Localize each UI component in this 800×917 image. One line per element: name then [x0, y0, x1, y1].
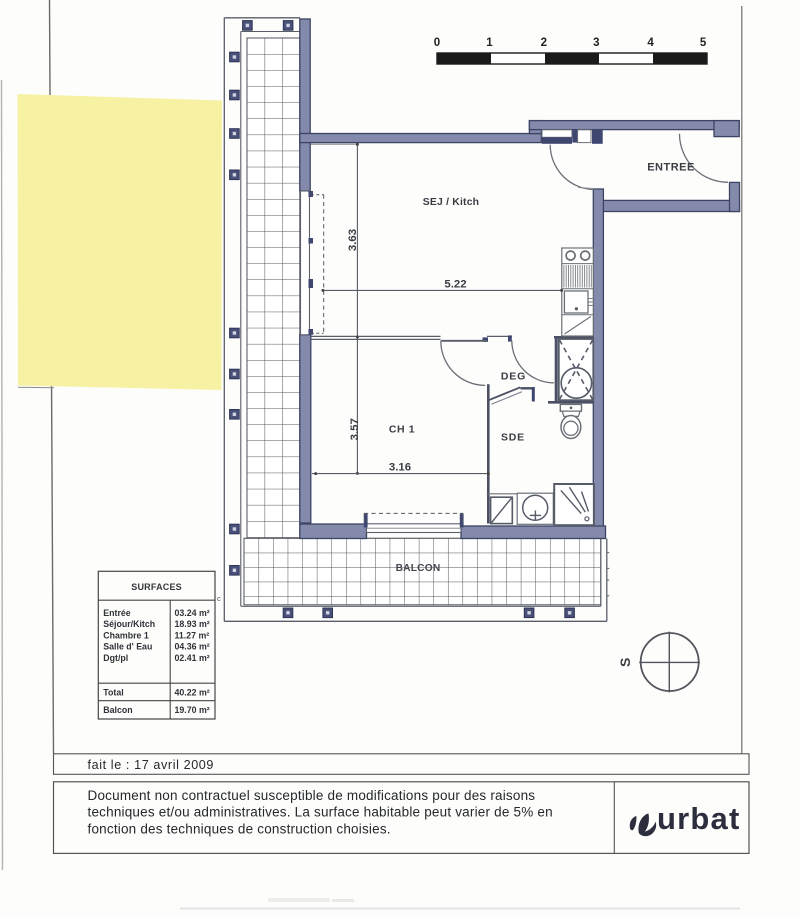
svg-text:SDE: SDE — [501, 432, 525, 444]
svg-text:ENTREE: ENTREE — [647, 161, 695, 173]
svg-text:1: 1 — [486, 37, 493, 49]
svg-text:19.70 m²: 19.70 m² — [175, 705, 210, 715]
svg-text:5: 5 — [700, 37, 707, 49]
svg-text:11.27 m²: 11.27 m² — [175, 630, 210, 640]
svg-text:Chambre 1: Chambre 1 — [103, 630, 149, 640]
svg-text:c: c — [217, 594, 221, 603]
svg-text:fait le : 17 avril 2009: fait le : 17 avril 2009 — [88, 758, 215, 772]
svg-text:Dgt/pl: Dgt/pl — [103, 653, 128, 663]
svg-text:Total: Total — [103, 687, 123, 697]
svg-text:02.41 m²: 02.41 m² — [175, 653, 210, 663]
svg-text:Entrée: Entrée — [103, 608, 130, 618]
svg-text:4: 4 — [647, 37, 654, 49]
svg-text:3.63: 3.63 — [347, 229, 359, 251]
svg-text:2: 2 — [541, 37, 547, 49]
svg-text:18.93 m²: 18.93 m² — [175, 619, 210, 629]
svg-text:Document non contractuel susce: Document non contractuel susceptible de … — [88, 788, 536, 803]
svg-text:BALCON: BALCON — [396, 563, 441, 574]
svg-text:fonction des techniques de con: fonction des techniques de construction … — [88, 821, 391, 836]
svg-text:DEG: DEG — [501, 371, 526, 383]
svg-text:0: 0 — [434, 37, 440, 49]
svg-text:urbat: urbat — [657, 801, 741, 836]
svg-text:40.22 m²: 40.22 m² — [175, 687, 210, 697]
svg-text:3.16: 3.16 — [389, 461, 411, 473]
svg-text:5.22: 5.22 — [444, 279, 466, 291]
svg-text:3.57: 3.57 — [349, 418, 361, 440]
svg-text:Balcon: Balcon — [103, 705, 132, 715]
svg-text:3: 3 — [593, 37, 599, 49]
svg-text:SURFACES: SURFACES — [131, 582, 182, 592]
svg-text:Salle d' Eau: Salle d' Eau — [103, 642, 152, 652]
svg-text:S: S — [617, 658, 633, 667]
svg-text:04.36 m²: 04.36 m² — [175, 642, 210, 652]
svg-text:Séjour/Kitch: Séjour/Kitch — [103, 619, 155, 629]
svg-text:CH 1: CH 1 — [389, 424, 415, 436]
svg-text:03.24 m²: 03.24 m² — [175, 608, 210, 618]
svg-text:SEJ / Kitch: SEJ / Kitch — [423, 197, 479, 208]
svg-text:techniques et/ou administrativ: techniques et/ou administratives. La sur… — [88, 805, 553, 820]
